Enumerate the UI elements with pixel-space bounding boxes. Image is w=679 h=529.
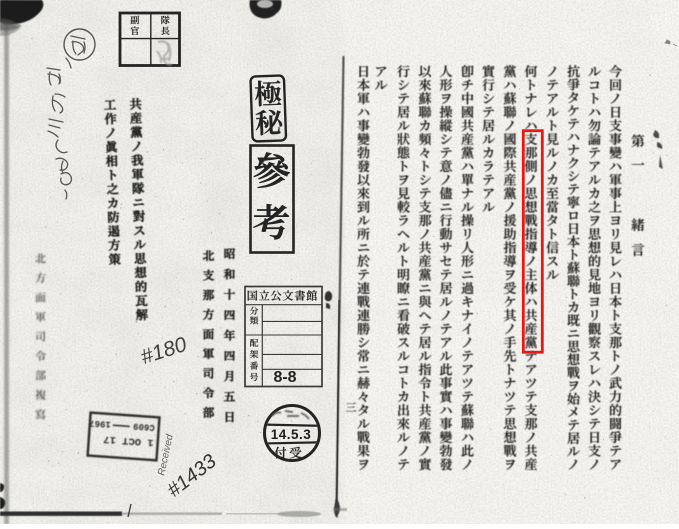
svg-text:C609: C609 (133, 421, 155, 432)
svg-text:14.5.3: 14.5.3 (271, 427, 312, 442)
svg-text:1967: 1967 (89, 418, 111, 429)
svg-text:8-8: 8-8 (273, 369, 296, 386)
